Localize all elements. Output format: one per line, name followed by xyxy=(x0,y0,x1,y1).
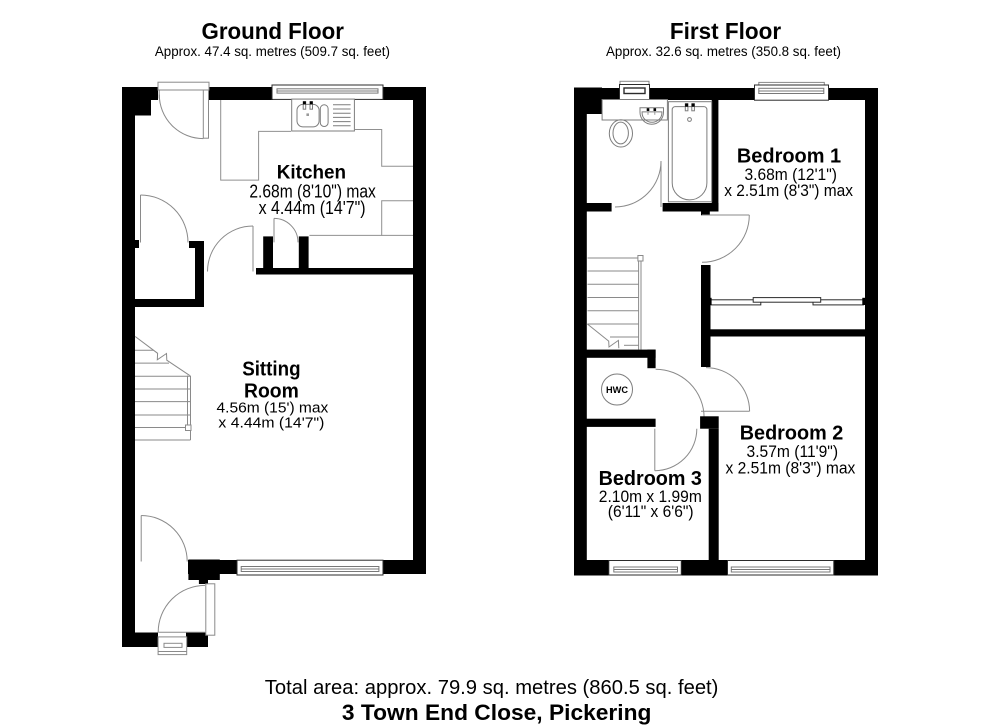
svg-text:3 Town End Close, Pickering: 3 Town End Close, Pickering xyxy=(342,700,652,725)
svg-text:Sitting: Sitting xyxy=(242,358,300,380)
svg-text:(6'11" x 6'6"): (6'11" x 6'6") xyxy=(608,503,694,521)
svg-text:First Floor: First Floor xyxy=(670,18,781,44)
svg-text:Bedroom 1: Bedroom 1 xyxy=(737,146,841,168)
svg-text:Approx. 47.4 sq. metres (509.7: Approx. 47.4 sq. metres (509.7 sq. feet) xyxy=(155,44,390,59)
svg-text:Room: Room xyxy=(244,380,299,402)
svg-text:Bedroom 3: Bedroom 3 xyxy=(599,468,702,490)
svg-text:3.57m (11'9"): 3.57m (11'9") xyxy=(747,443,839,461)
svg-text:Bedroom 2: Bedroom 2 xyxy=(740,423,844,445)
svg-text:Ground Floor: Ground Floor xyxy=(202,18,344,44)
svg-text:x 2.51m (8'3") max: x 2.51m (8'3") max xyxy=(724,182,853,200)
svg-text:4.56m (15') max: 4.56m (15') max xyxy=(217,401,330,417)
svg-text:x 4.44m (14'7"): x 4.44m (14'7") xyxy=(218,416,324,432)
svg-text:x 2.51m (8'3") max: x 2.51m (8'3") max xyxy=(726,459,857,477)
svg-text:Approx. 32.6 sq. metres (350.8: Approx. 32.6 sq. metres (350.8 sq. feet) xyxy=(606,44,841,59)
svg-text:HWC: HWC xyxy=(606,385,628,396)
svg-text:x 4.44m (14'7"): x 4.44m (14'7") xyxy=(259,197,366,218)
svg-text:Total area: approx. 79.9 sq. m: Total area: approx. 79.9 sq. metres (860… xyxy=(265,676,719,699)
